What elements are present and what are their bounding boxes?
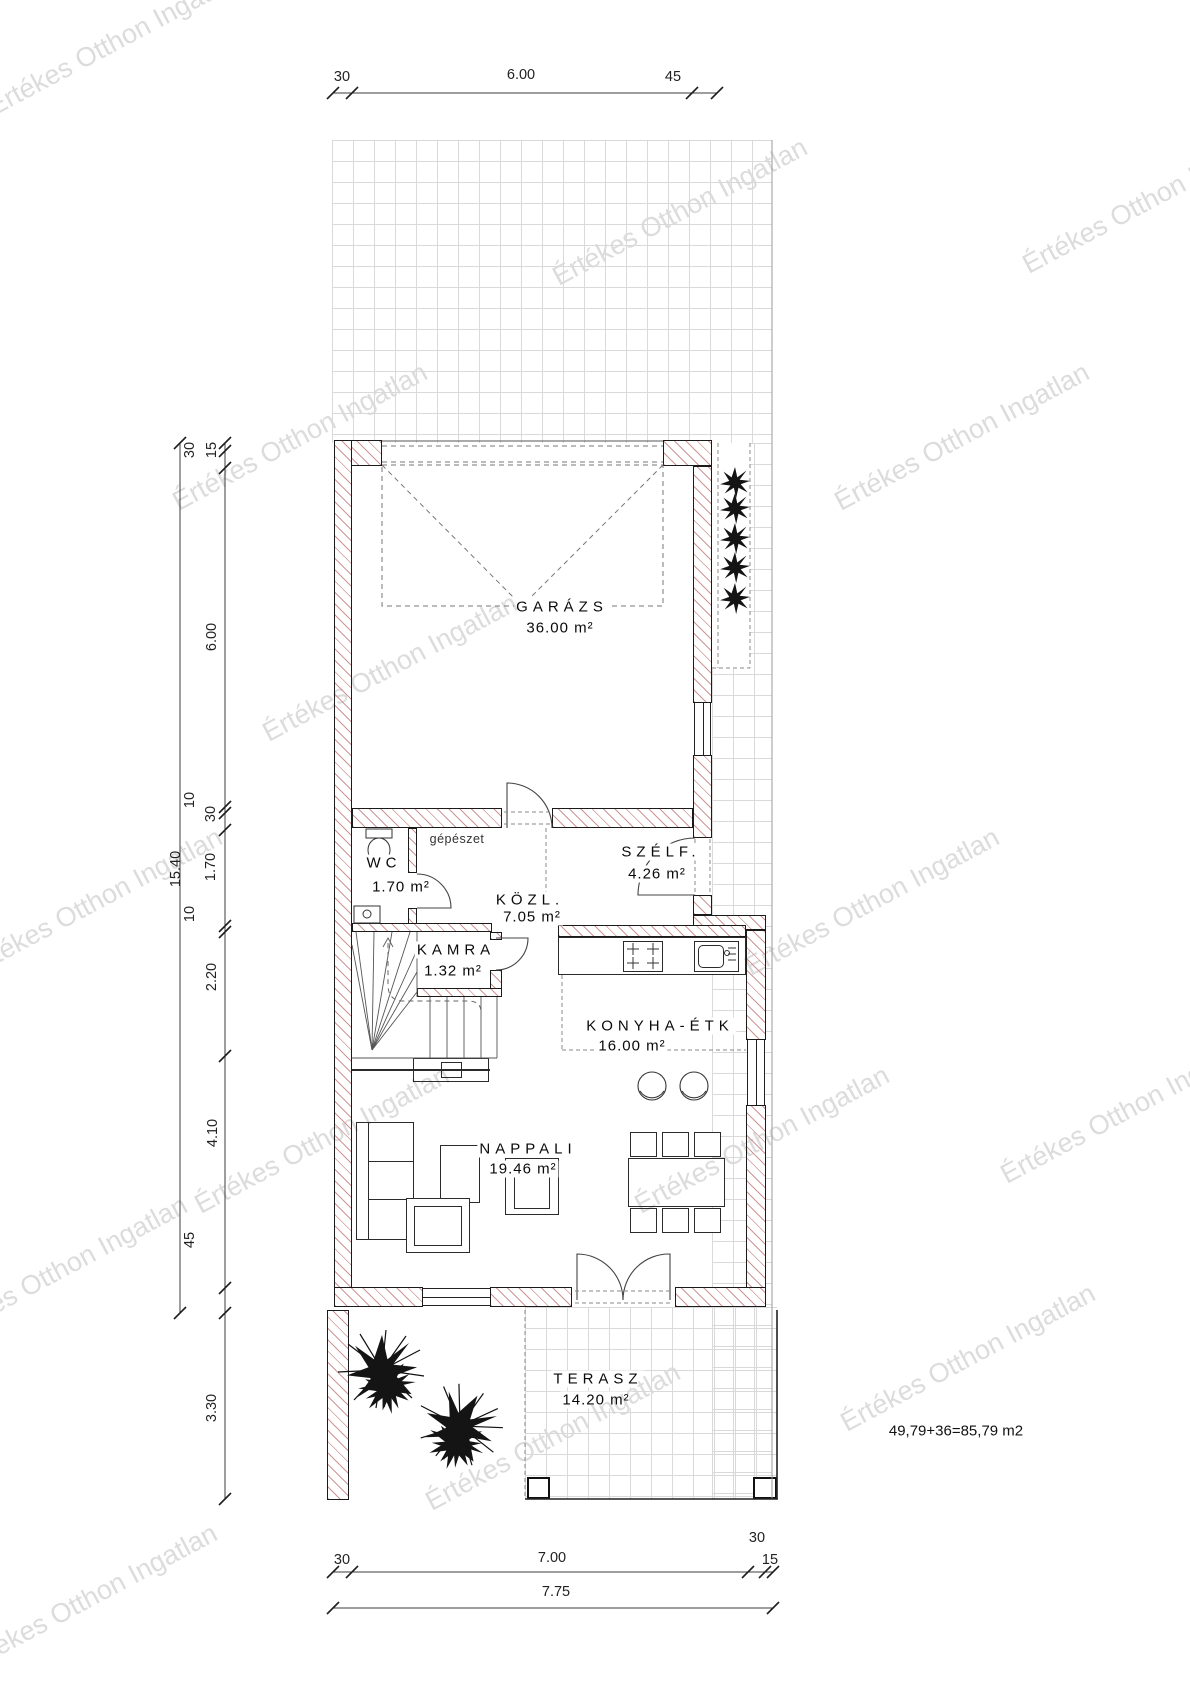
- dim-top-span: 6.00: [507, 67, 535, 83]
- room-area-szelfogo: 4.26 m²: [626, 866, 688, 883]
- dim-left-15: 15: [204, 442, 220, 458]
- dim-left-total: 15.40: [168, 851, 184, 887]
- dim-left-terrace: 3.30: [204, 1394, 220, 1422]
- room-area-kozlekedo: 7.05 m²: [501, 909, 563, 926]
- room-area-nappali: 19.46 m²: [487, 1161, 558, 1178]
- label-gepeszet: gépészet: [428, 832, 487, 846]
- dim-left-garage: 6.00: [204, 623, 220, 651]
- room-label-garazs: GARÁZS: [514, 599, 610, 616]
- room-label-kozlekedo: KÖZL.: [494, 892, 566, 909]
- dim-left-30: 30: [182, 442, 198, 458]
- room-area-terasz: 14.20 m²: [560, 1392, 631, 1409]
- dim-left-10b: 10: [182, 906, 198, 922]
- dim-left-wc: 1.70: [203, 853, 219, 881]
- dim-left-45: 45: [182, 1232, 198, 1248]
- room-label-szelfogo: SZÉLF.: [619, 844, 702, 861]
- total-area-note: 49,79+36=85,79 m2: [889, 1423, 1023, 1440]
- floor-plan: GARÁZS 36.00 m² WC 1.70 m² gépészet SZÉL…: [0, 0, 1190, 1684]
- dim-bottom-span: 7.00: [538, 1550, 566, 1566]
- dim-top-right: 45: [665, 69, 681, 85]
- dim-bottom-total: 7.75: [542, 1584, 570, 1600]
- room-area-kamra: 1.32 m²: [422, 963, 484, 980]
- room-area-konyha: 16.00 m²: [596, 1038, 667, 1055]
- room-label-kamra: KAMRA: [415, 942, 497, 959]
- room-area-wc: 1.70 m²: [370, 879, 432, 896]
- dim-left-living: 4.10: [205, 1119, 221, 1147]
- dim-top-wall: 30: [334, 69, 350, 85]
- dim-bottom-30b: 30: [749, 1530, 765, 1546]
- room-label-terasz: TERASZ: [551, 1371, 644, 1388]
- room-label-konyha: KONYHA-ÉTK: [584, 1018, 736, 1035]
- dim-left-stairs: 2.20: [204, 963, 220, 991]
- dim-left-30b: 30: [203, 806, 219, 822]
- room-area-garazs: 36.00 m²: [524, 620, 595, 637]
- dim-bottom-30a: 30: [334, 1552, 350, 1568]
- room-label-wc: WC: [365, 855, 404, 872]
- dim-left-10a: 10: [182, 792, 198, 808]
- dim-bottom-15: 15: [762, 1552, 778, 1568]
- room-label-nappali: NAPPALI: [477, 1141, 578, 1158]
